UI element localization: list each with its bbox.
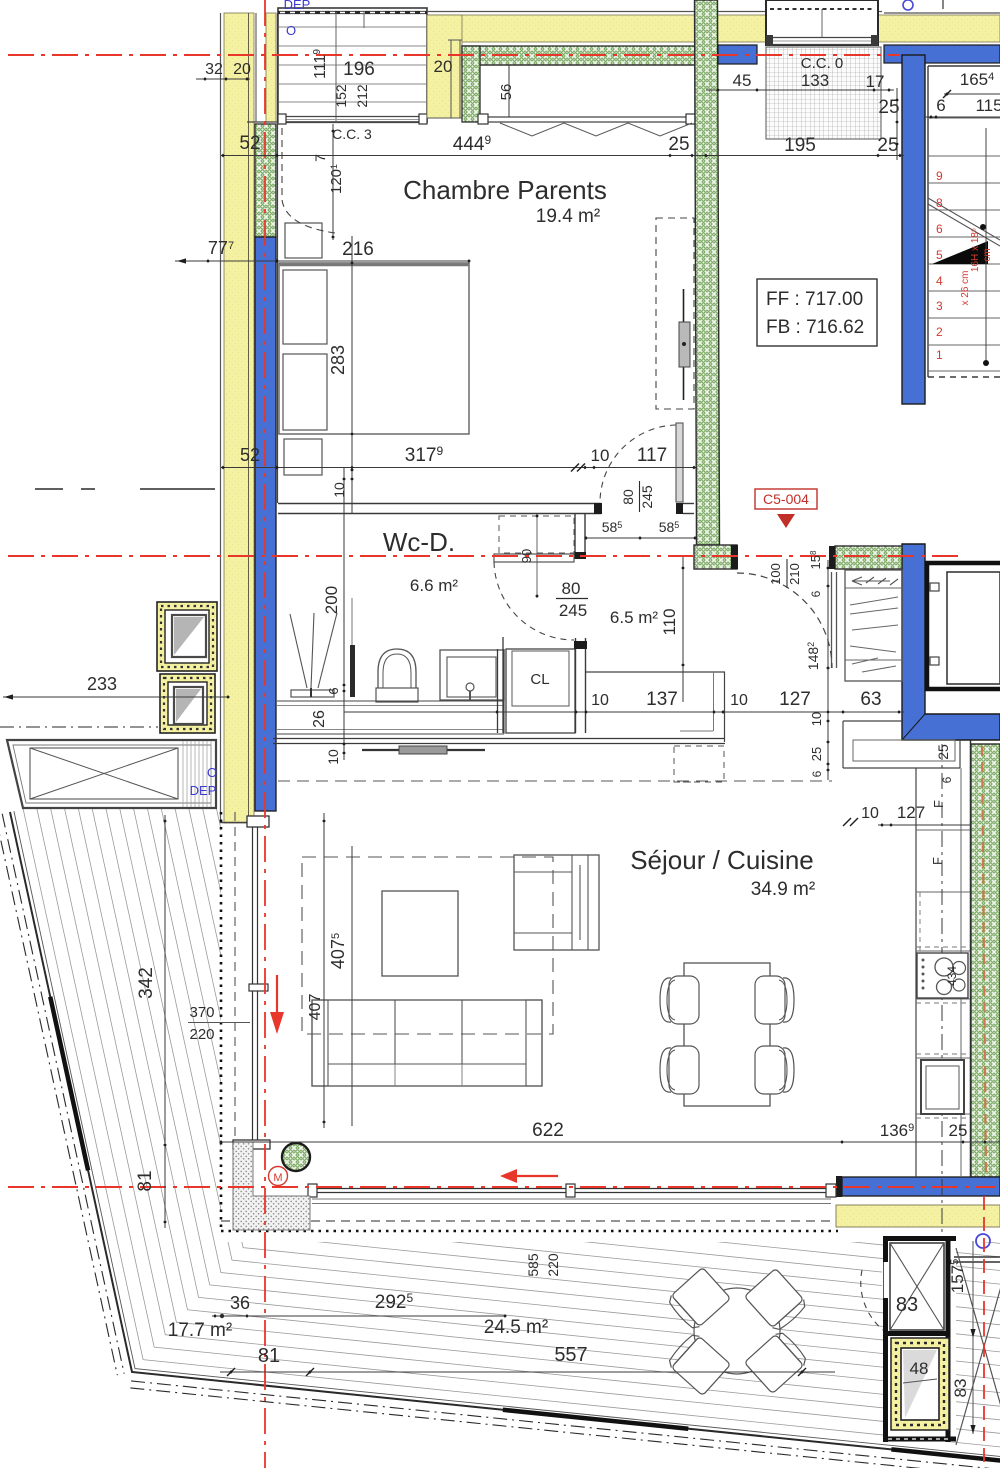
svg-text:127: 127 xyxy=(779,689,811,710)
svg-text:32: 32 xyxy=(205,61,223,78)
svg-text:x 26 cm: x 26 cm xyxy=(960,270,971,305)
svg-text:6.6 m²: 6.6 m² xyxy=(410,576,459,595)
svg-text:80: 80 xyxy=(562,579,581,598)
svg-text:24.5 m²: 24.5 m² xyxy=(484,1317,548,1338)
svg-text:Wc-D.: Wc-D. xyxy=(383,527,455,557)
svg-text:FB : 716.62: FB : 716.62 xyxy=(766,317,864,338)
svg-text:117: 117 xyxy=(637,445,667,466)
svg-text:10: 10 xyxy=(591,692,609,709)
svg-text:19.4 m²: 19.4 m² xyxy=(536,206,600,227)
svg-text:200: 200 xyxy=(322,586,341,614)
svg-text:10: 10 xyxy=(809,712,824,726)
svg-text:34.9 m²: 34.9 m² xyxy=(751,879,815,900)
svg-text:7: 7 xyxy=(312,154,328,162)
svg-text:10: 10 xyxy=(331,482,347,498)
svg-text:17.7 m²: 17.7 m² xyxy=(168,1320,232,1341)
svg-text:220: 220 xyxy=(189,1026,214,1043)
svg-text:25: 25 xyxy=(877,135,898,156)
svg-text:25: 25 xyxy=(668,134,689,155)
svg-text:370: 370 xyxy=(189,1004,214,1021)
svg-text:1: 1 xyxy=(936,348,943,362)
svg-text:48: 48 xyxy=(910,1359,929,1378)
svg-text:283: 283 xyxy=(328,345,348,375)
svg-text:233: 233 xyxy=(87,674,117,694)
svg-text:4: 4 xyxy=(936,274,943,288)
svg-text:8: 8 xyxy=(936,196,943,210)
svg-text:cm: cm xyxy=(982,248,993,261)
svg-text:CL: CL xyxy=(530,671,549,688)
svg-text:133: 133 xyxy=(801,71,829,90)
svg-text:115: 115 xyxy=(975,96,1000,115)
svg-text:25: 25 xyxy=(809,747,824,761)
svg-text:212: 212 xyxy=(354,84,370,108)
svg-text:10: 10 xyxy=(325,749,341,765)
svg-text:5: 5 xyxy=(936,248,943,262)
svg-text:137: 137 xyxy=(646,689,678,710)
svg-text:3: 3 xyxy=(936,299,943,313)
svg-text:196: 196 xyxy=(343,59,375,80)
svg-text:245: 245 xyxy=(639,485,655,509)
svg-text:36: 36 xyxy=(230,1293,250,1313)
svg-text:6: 6 xyxy=(810,770,824,777)
svg-text:Séjour / Cuisine: Séjour / Cuisine xyxy=(630,845,814,875)
svg-text:6: 6 xyxy=(936,222,943,236)
svg-text:20: 20 xyxy=(233,61,251,78)
svg-text:20: 20 xyxy=(434,57,453,76)
svg-text:216: 216 xyxy=(342,239,374,260)
svg-text:152: 152 xyxy=(333,84,349,108)
svg-text:C.C. 3: C.C. 3 xyxy=(332,126,372,142)
svg-text:342: 342 xyxy=(136,967,157,999)
svg-text:100: 100 xyxy=(768,563,783,585)
svg-text:2: 2 xyxy=(936,325,943,339)
svg-text:6: 6 xyxy=(940,776,954,783)
svg-text:110: 110 xyxy=(660,608,679,635)
svg-text:17: 17 xyxy=(866,72,885,91)
svg-text:83: 83 xyxy=(951,1379,970,1398)
svg-text:25: 25 xyxy=(949,1121,968,1140)
svg-text:127: 127 xyxy=(897,803,925,822)
svg-text:FF : 717.00: FF : 717.00 xyxy=(766,289,863,310)
svg-text:10: 10 xyxy=(730,692,748,709)
svg-text:81: 81 xyxy=(135,1170,156,1191)
svg-text:F: F xyxy=(931,800,946,808)
svg-text:622: 622 xyxy=(532,1120,564,1141)
svg-text:6: 6 xyxy=(326,687,341,694)
svg-text:220: 220 xyxy=(545,1253,561,1277)
svg-text:80: 80 xyxy=(620,489,636,505)
svg-text:52: 52 xyxy=(239,133,260,154)
svg-text:6: 6 xyxy=(809,590,823,597)
svg-text:81: 81 xyxy=(258,1345,280,1367)
svg-text:56: 56 xyxy=(498,84,515,101)
svg-text:C5-004: C5-004 xyxy=(763,491,809,507)
svg-text:63: 63 xyxy=(860,689,881,710)
svg-text:Chambre Parents: Chambre Parents xyxy=(403,175,607,205)
svg-text:C.C. 0: C.C. 0 xyxy=(801,55,844,72)
svg-text:52: 52 xyxy=(240,445,260,465)
svg-text:6.5 m²: 6.5 m² xyxy=(610,608,659,627)
svg-text:F: F xyxy=(930,857,945,865)
svg-text:25: 25 xyxy=(935,744,951,760)
svg-text:45: 45 xyxy=(733,71,752,90)
svg-text:26: 26 xyxy=(311,710,328,728)
svg-text:210: 210 xyxy=(787,563,802,585)
svg-text:245: 245 xyxy=(559,601,587,620)
svg-text:407: 407 xyxy=(307,994,324,1021)
svg-text:10: 10 xyxy=(591,446,610,465)
svg-text:9: 9 xyxy=(936,169,943,183)
svg-text:DEP: DEP xyxy=(284,0,311,12)
svg-text:DEP: DEP xyxy=(190,783,217,798)
svg-text:6: 6 xyxy=(936,96,945,115)
svg-text:585: 585 xyxy=(525,1253,541,1277)
svg-text:83: 83 xyxy=(896,1294,918,1316)
svg-text:O: O xyxy=(207,765,217,780)
svg-text:195: 195 xyxy=(784,135,816,156)
svg-text:434: 434 xyxy=(945,966,959,986)
svg-text:10: 10 xyxy=(861,805,879,822)
svg-text:M: M xyxy=(273,1172,282,1184)
svg-text:557: 557 xyxy=(554,1344,587,1366)
svg-text:16H x 18⁵: 16H x 18⁵ xyxy=(970,228,981,272)
svg-text:O: O xyxy=(286,23,296,38)
